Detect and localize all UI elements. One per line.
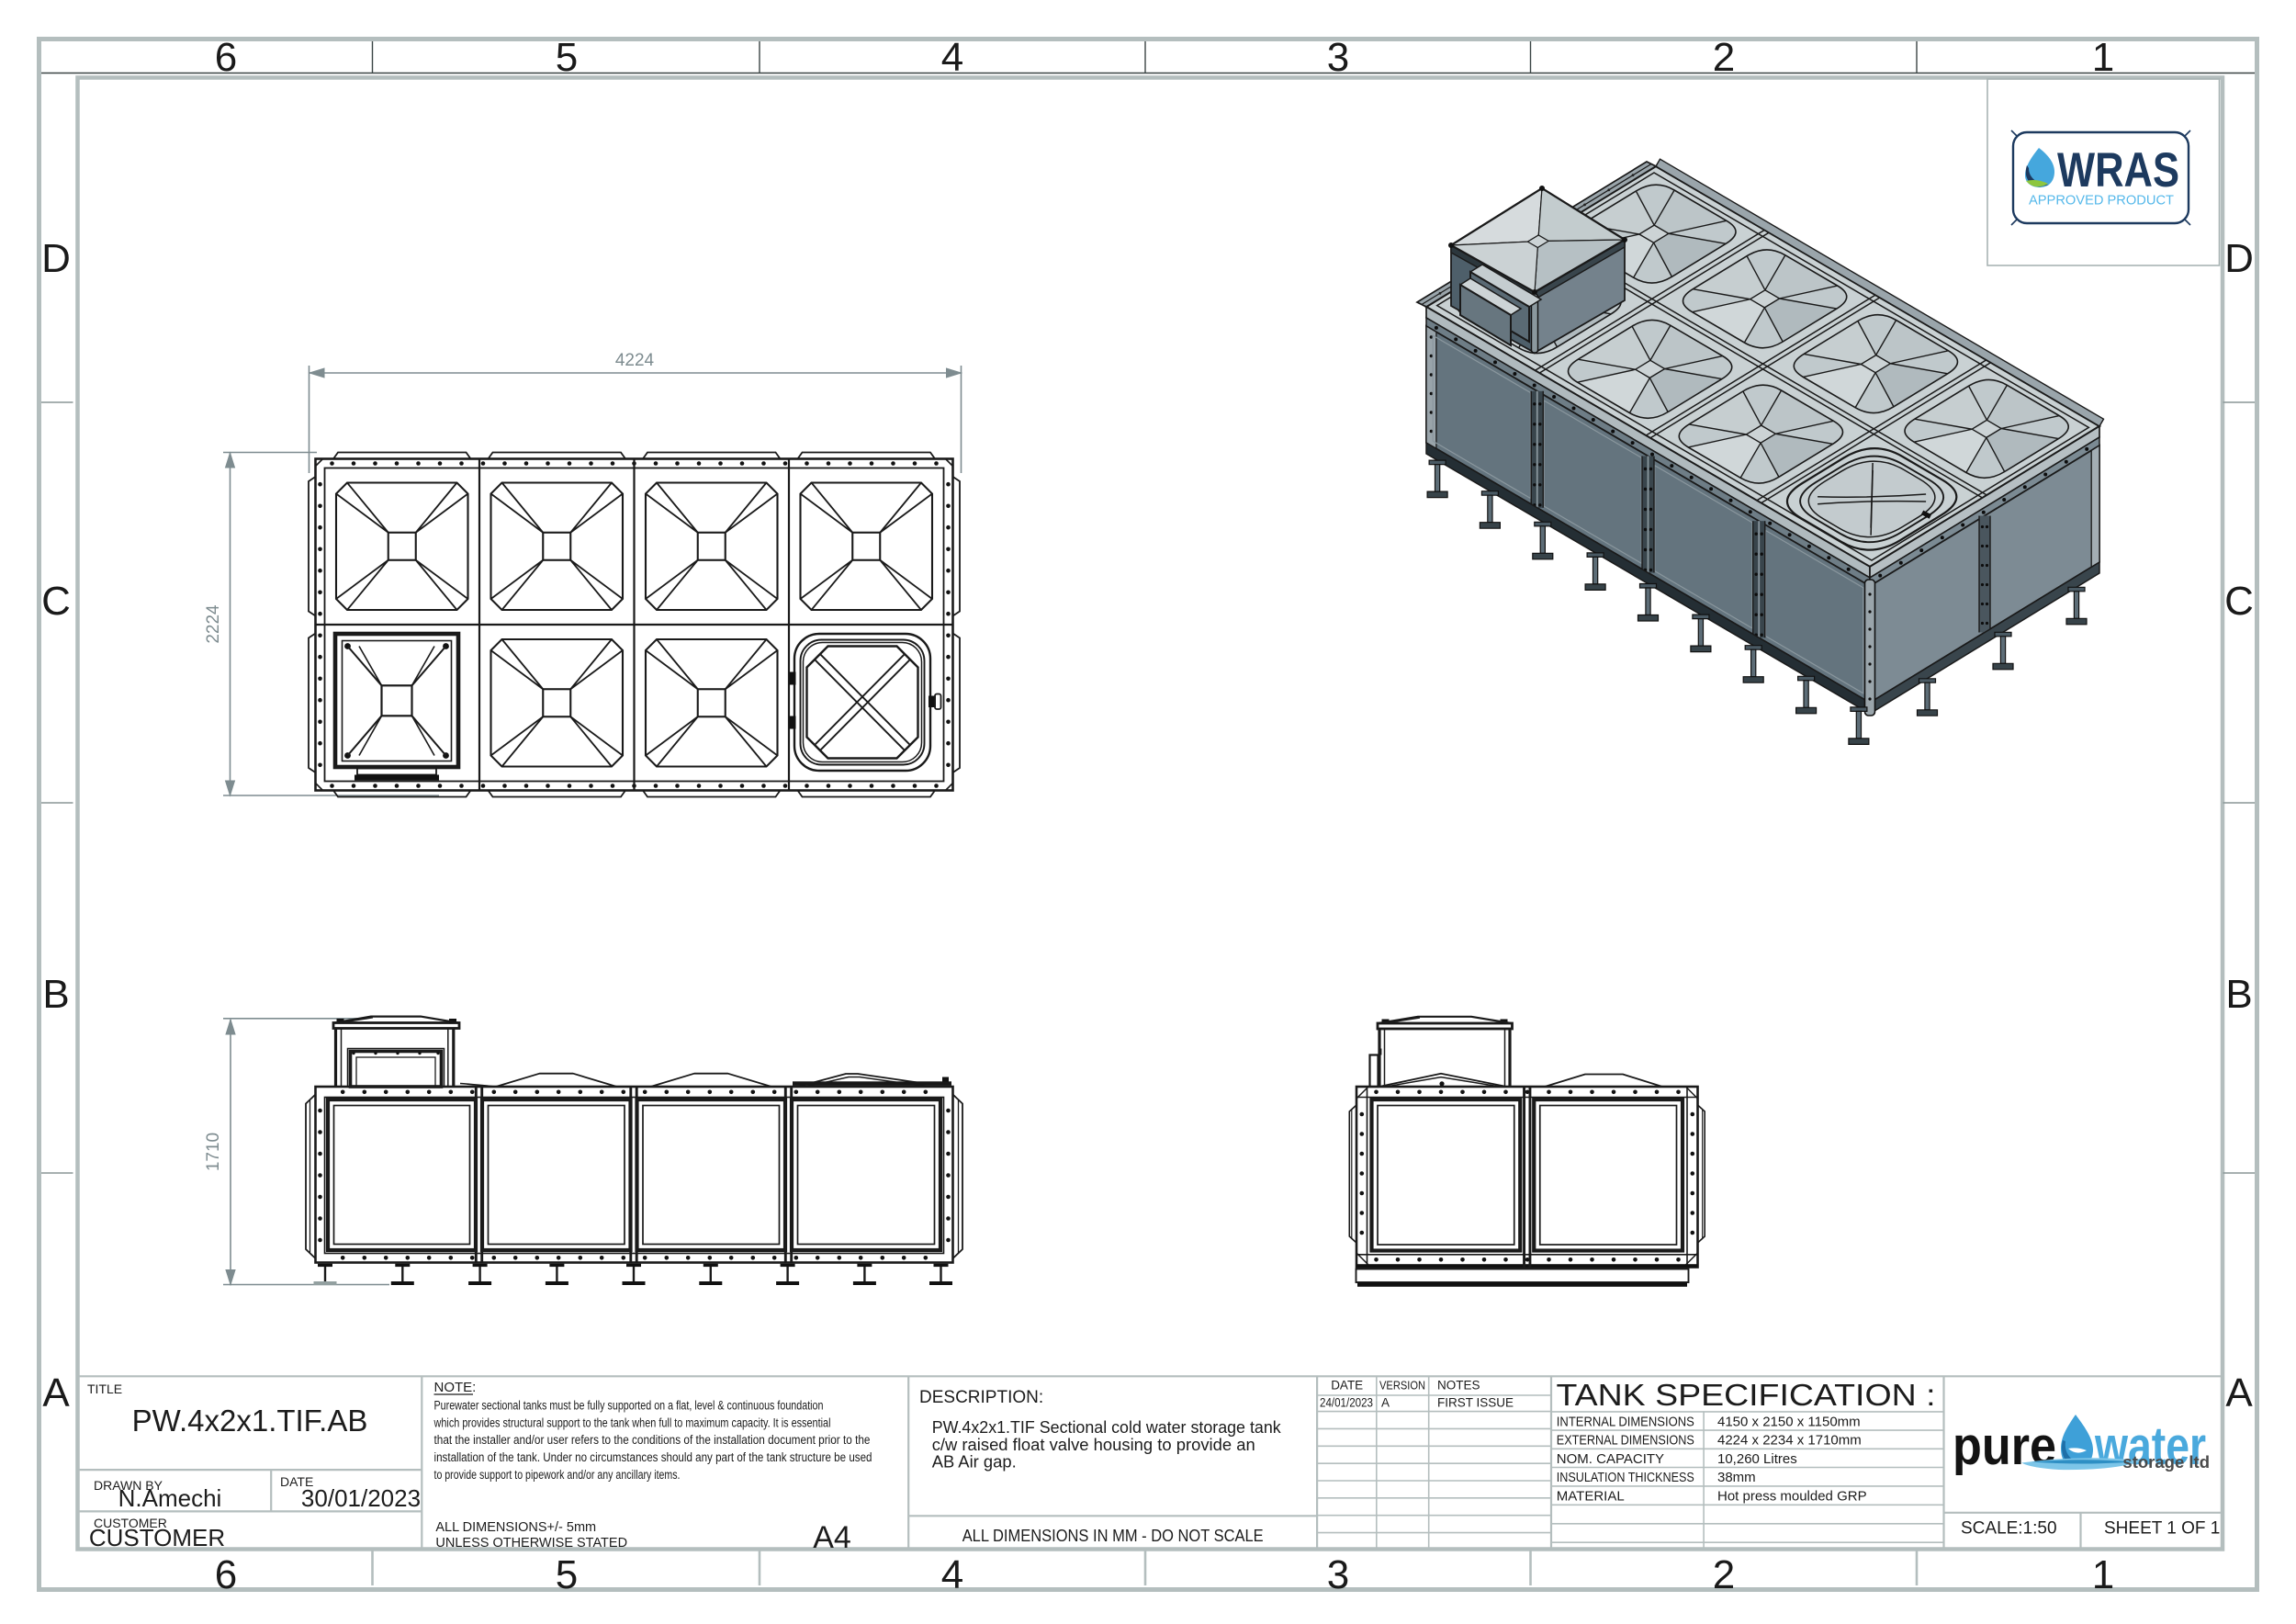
svg-text:2224: 2224 (204, 604, 223, 644)
svg-text:INSULATION THICKNESS: INSULATION THICKNESS (1557, 1470, 1694, 1485)
svg-text:2: 2 (1713, 1552, 1735, 1597)
svg-text:30/01/2023: 30/01/2023 (301, 1484, 421, 1512)
svg-text:10,260 Litres: 10,260 Litres (1717, 1451, 1797, 1467)
svg-text:D: D (41, 236, 71, 281)
svg-text:DESCRIPTION:: DESCRIPTION: (919, 1388, 1043, 1407)
svg-text:1: 1 (2092, 35, 2114, 80)
svg-text:4224 x 2234 x 1710mm: 4224 x 2234 x 1710mm (1717, 1433, 1862, 1449)
svg-text:ALL DIMENSIONS IN MM - DO NOT: ALL DIMENSIONS IN MM - DO NOT SCALE (962, 1526, 1264, 1545)
svg-text:C: C (41, 579, 71, 624)
svg-text:AB Air gap.: AB Air gap. (932, 1452, 1017, 1472)
svg-text:CUSTOMER: CUSTOMER (89, 1524, 225, 1551)
svg-text:APPROVED PRODUCT: APPROVED PRODUCT (2029, 194, 2174, 209)
svg-text:NOTES: NOTES (1437, 1379, 1480, 1393)
svg-text:SHEET 1 OF 1: SHEET 1 OF 1 (2104, 1519, 2220, 1539)
svg-text:EXTERNAL DIMENSIONS: EXTERNAL DIMENSIONS (1557, 1433, 1694, 1449)
svg-text:4150 x 2150 x 1150mm: 4150 x 2150 x 1150mm (1717, 1415, 1861, 1430)
svg-text:2: 2 (1713, 35, 1735, 80)
svg-text:SCALE:1:50: SCALE:1:50 (1961, 1519, 2057, 1539)
svg-text:C: C (2224, 579, 2254, 624)
svg-text:1710: 1710 (204, 1133, 223, 1171)
svg-text:6: 6 (215, 35, 237, 80)
svg-text:NOM. CAPACITY: NOM. CAPACITY (1557, 1451, 1664, 1467)
svg-text:5: 5 (556, 35, 578, 80)
svg-text:PW.4x2x1.TIF.AB: PW.4x2x1.TIF.AB (132, 1404, 368, 1438)
svg-text:Hot press moulded GRP: Hot press moulded GRP (1717, 1488, 1867, 1504)
svg-text:6: 6 (215, 1552, 237, 1597)
svg-text:installation of the tank. Unde: installation of the tank. Under no circu… (434, 1450, 872, 1465)
svg-text:D: D (2224, 236, 2254, 281)
svg-text:A: A (2225, 1370, 2253, 1415)
svg-text:that the installer and/or user: that the installer and/or user refers to… (434, 1433, 871, 1448)
svg-text:B: B (42, 972, 69, 1017)
svg-text:which provides structural supp: which provides structural support to the… (433, 1415, 831, 1430)
svg-text:DATE: DATE (1331, 1379, 1363, 1393)
svg-text:NOTE:: NOTE: (434, 1380, 477, 1395)
svg-text:A: A (42, 1370, 70, 1415)
svg-text:1: 1 (2092, 1552, 2114, 1597)
svg-text:4: 4 (941, 1552, 963, 1597)
svg-text:B: B (2225, 972, 2252, 1017)
svg-text:UNLESS OTHERWISE STATED: UNLESS OTHERWISE STATED (435, 1536, 627, 1551)
svg-text:3: 3 (1327, 1552, 1349, 1597)
svg-text:A: A (1381, 1396, 1390, 1410)
svg-text:ALL DIMENSIONS+/- 5mm: ALL DIMENSIONS+/- 5mm (435, 1520, 596, 1535)
svg-text:38mm: 38mm (1717, 1470, 1756, 1485)
svg-text:VERSION: VERSION (1379, 1379, 1425, 1393)
svg-text:24/01/2023: 24/01/2023 (1320, 1396, 1373, 1410)
svg-text:MATERIAL: MATERIAL (1557, 1488, 1625, 1504)
svg-text:FIRST ISSUE: FIRST ISSUE (1437, 1396, 1514, 1410)
svg-text:INTERNAL DIMENSIONS: INTERNAL DIMENSIONS (1557, 1415, 1694, 1430)
svg-text:A4: A4 (813, 1520, 851, 1555)
svg-text:N.Amechi: N.Amechi (118, 1484, 222, 1512)
svg-text:TANK SPECIFICATION :: TANK SPECIFICATION : (1557, 1378, 1936, 1412)
svg-text:WRAS: WRAS (2057, 143, 2179, 197)
svg-text:4: 4 (941, 35, 963, 80)
svg-text:5: 5 (556, 1552, 578, 1597)
svg-text:storage ltd: storage ltd (2122, 1452, 2210, 1472)
svg-text:Purewater sectional tanks must: Purewater sectional tanks must be fully … (434, 1399, 824, 1414)
svg-text:4224: 4224 (615, 351, 655, 370)
svg-text:TITLE: TITLE (87, 1382, 122, 1396)
svg-text:3: 3 (1327, 35, 1349, 80)
svg-text:to provide support to pipework: to provide support to pipework and/or an… (434, 1468, 681, 1483)
